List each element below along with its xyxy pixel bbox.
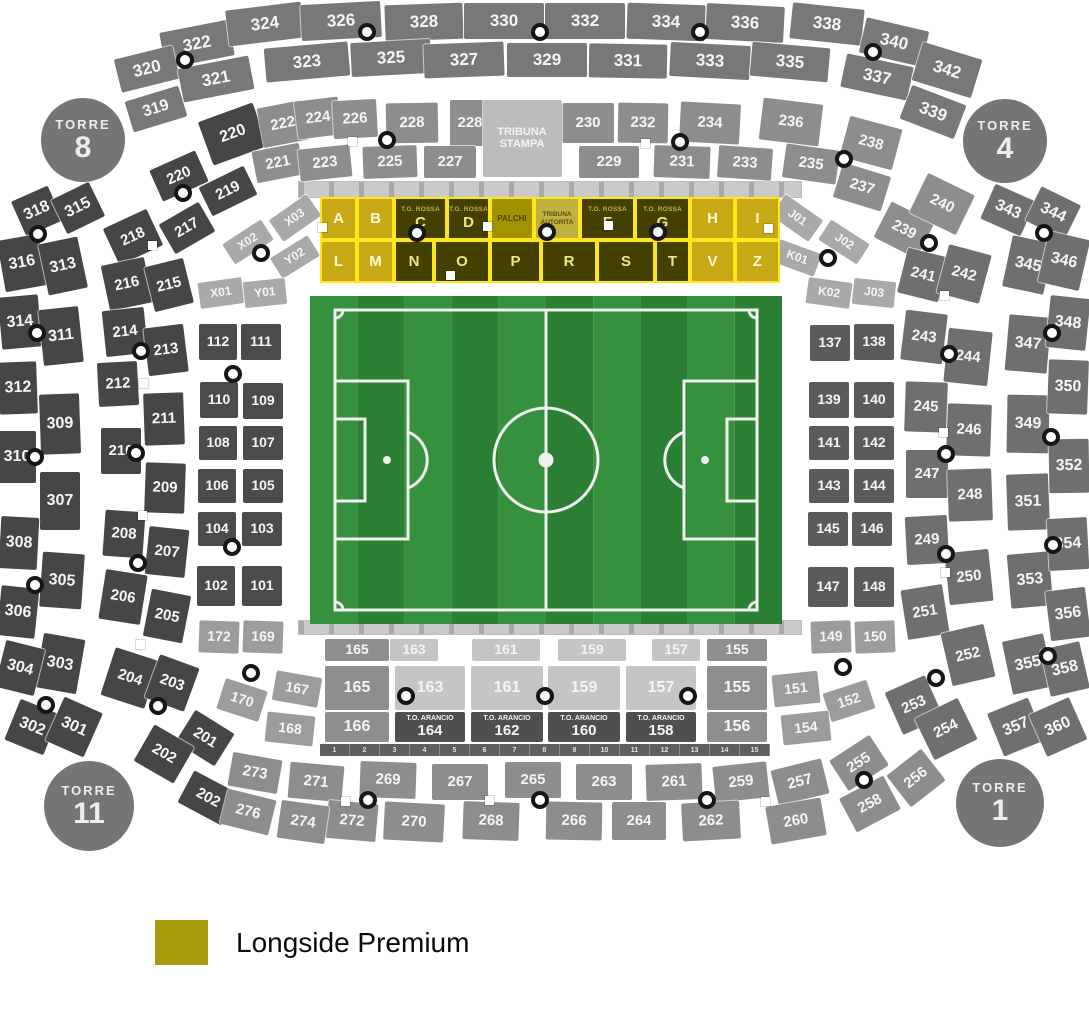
section-212-63[interactable]: 212 xyxy=(97,361,139,407)
premium-section-h[interactable]: H xyxy=(690,197,735,240)
section-305-34[interactable]: 305 xyxy=(39,551,85,609)
entrance-marker-icon xyxy=(1039,647,1057,665)
soccer-pitch xyxy=(310,296,782,624)
stadium-seating-map: TORRE8TORRE4TORRE11TORRE1322324326328330… xyxy=(0,0,1089,1032)
section-352-49[interactable]: 352 xyxy=(1049,439,1089,494)
section-152-178[interactable]: 152 xyxy=(822,680,875,723)
gate-square xyxy=(138,511,147,520)
section-155-185[interactable]: 155 xyxy=(707,639,767,661)
seat-row-number: 13 xyxy=(680,744,710,756)
section-263-123[interactable]: 263 xyxy=(576,764,632,800)
seat-row-number: 4 xyxy=(410,744,440,756)
tower-label: TORRE xyxy=(61,783,116,798)
section-label: 158 xyxy=(648,723,673,740)
section-248-108[interactable]: 248 xyxy=(947,468,993,522)
section-331-16[interactable]: 331 xyxy=(589,43,668,78)
section-219-78[interactable]: 219 xyxy=(199,166,258,217)
seat-row-number: 7 xyxy=(500,744,530,756)
entrance-marker-icon xyxy=(28,324,46,342)
section-260-120[interactable]: 260 xyxy=(765,797,827,844)
section-y01-164[interactable]: Y01 xyxy=(243,278,287,308)
section-label: 160 xyxy=(571,723,596,740)
section-261-121[interactable]: 261 xyxy=(645,763,702,801)
gate-square xyxy=(764,224,773,233)
section-266-126[interactable]: 266 xyxy=(546,802,603,841)
section-312-29[interactable]: 312 xyxy=(0,361,38,414)
entrance-marker-icon xyxy=(691,23,709,41)
seat-row-number: 6 xyxy=(470,744,500,756)
section-162-194[interactable]: T.O. ARANCIO162 xyxy=(471,712,543,742)
section-323-12[interactable]: 323 xyxy=(264,41,351,82)
section-257-117[interactable]: 257 xyxy=(770,758,829,806)
gate-square xyxy=(348,137,357,146)
section-112-136[interactable]: 112 xyxy=(199,324,237,360)
seat-row-number: 8 xyxy=(530,744,560,756)
section-270-130[interactable]: 270 xyxy=(383,801,445,842)
section-320-10[interactable]: 320 xyxy=(114,45,180,93)
tower-number: 8 xyxy=(75,132,92,164)
gate-square xyxy=(318,223,327,232)
section-360-56[interactable]: 360 xyxy=(1029,697,1088,757)
entrance-marker-icon xyxy=(29,225,47,243)
premium-section-o[interactable]: O xyxy=(434,240,490,283)
section-160-195[interactable]: T.O. ARANCIO160 xyxy=(548,712,620,742)
section-226-81[interactable]: 226 xyxy=(332,99,378,139)
premium-letter: D xyxy=(463,214,474,231)
section-213-62[interactable]: 213 xyxy=(143,324,189,377)
section-142-153[interactable]: 142 xyxy=(854,426,894,460)
tower-label: TORRE xyxy=(972,780,1027,795)
legend: Longside Premium xyxy=(155,920,469,965)
section-303-36[interactable]: 303 xyxy=(35,632,86,693)
entrance-marker-icon xyxy=(927,669,945,687)
premium-section-t[interactable]: T xyxy=(655,240,690,283)
section-206-69[interactable]: 206 xyxy=(98,569,147,625)
section-157-184[interactable]: 157 xyxy=(652,639,700,661)
section-103-145[interactable]: 103 xyxy=(242,512,282,546)
section-166-192[interactable]: 166 xyxy=(325,712,389,742)
premium-section-palchi[interactable]: PALCHI xyxy=(490,197,534,240)
section-216-59[interactable]: 216 xyxy=(101,257,154,311)
section-205-70[interactable]: 205 xyxy=(143,589,191,644)
premium-section-a[interactable]: A xyxy=(320,197,357,240)
section-211-64[interactable]: 211 xyxy=(143,392,185,445)
section-110-138[interactable]: 110 xyxy=(200,382,238,418)
section-k02-168[interactable]: K02 xyxy=(805,277,852,309)
section-170-172[interactable]: 170 xyxy=(216,678,268,722)
entrance-marker-icon xyxy=(358,23,376,41)
entrance-marker-icon xyxy=(531,791,549,809)
gate-square xyxy=(483,222,492,231)
entrance-marker-icon xyxy=(397,687,415,705)
section-324-1[interactable]: 324 xyxy=(225,2,305,47)
premium-sub-label: T.O. ROSSA xyxy=(401,206,440,213)
section-tribuna-stampa-100[interactable]: TRIBUNA STAMPA xyxy=(483,100,562,177)
section-268-128[interactable]: 268 xyxy=(462,801,519,841)
section-165-180[interactable]: 165 xyxy=(325,639,389,661)
entrance-marker-icon xyxy=(408,224,426,242)
gate-square xyxy=(148,241,157,250)
section-319-22[interactable]: 319 xyxy=(125,86,188,133)
section-139-150[interactable]: 139 xyxy=(809,382,849,418)
entrance-marker-icon xyxy=(224,365,242,383)
tower-label: TORRE xyxy=(977,118,1032,133)
section-347-44[interactable]: 347 xyxy=(1005,314,1052,373)
tower-4: TORRE4 xyxy=(963,99,1047,183)
section-217-58[interactable]: 217 xyxy=(159,202,216,254)
entrance-marker-icon xyxy=(37,696,55,714)
section-218-57[interactable]: 218 xyxy=(103,209,163,266)
section-156-197[interactable]: 156 xyxy=(707,712,767,742)
seat-row-number: 14 xyxy=(710,744,740,756)
section-161-188[interactable]: 161 xyxy=(471,666,543,710)
tower-number: 11 xyxy=(73,798,105,830)
entrance-marker-icon xyxy=(223,538,241,556)
premium-sub-label: T.O. ROSSA xyxy=(643,206,682,213)
section-155-191[interactable]: 155 xyxy=(707,666,767,710)
section-107-141[interactable]: 107 xyxy=(243,426,283,460)
section-140-151[interactable]: 140 xyxy=(854,382,894,418)
gate-square xyxy=(939,428,948,437)
section-167-173[interactable]: 167 xyxy=(272,670,323,708)
section-215-60[interactable]: 215 xyxy=(144,258,194,312)
section-154-179[interactable]: 154 xyxy=(781,711,832,746)
section-108-140[interactable]: 108 xyxy=(199,426,237,460)
section-252-112[interactable]: 252 xyxy=(940,624,995,687)
tower-number: 1 xyxy=(992,795,1009,827)
premium-sub-label: T.O. ROSSA xyxy=(588,206,627,213)
section-150-176[interactable]: 150 xyxy=(854,620,895,653)
section-343-40[interactable]: 343 xyxy=(980,184,1036,237)
seat-row-number: 5 xyxy=(440,744,470,756)
entrance-marker-icon xyxy=(864,43,882,61)
entrance-marker-icon xyxy=(940,345,958,363)
gate-square xyxy=(604,221,613,230)
entrance-marker-icon xyxy=(127,444,145,462)
seat-row-number: 12 xyxy=(650,744,680,756)
tower-number: 4 xyxy=(997,133,1014,165)
section-351-48[interactable]: 351 xyxy=(1006,473,1050,530)
premium-section-m[interactable]: M xyxy=(357,240,394,283)
section-271-131[interactable]: 271 xyxy=(288,762,345,803)
gate-square xyxy=(761,797,770,806)
section-333-17[interactable]: 333 xyxy=(669,42,751,80)
section-356-53[interactable]: 356 xyxy=(1045,587,1089,642)
section-251-111[interactable]: 251 xyxy=(900,584,949,640)
entrance-marker-icon xyxy=(819,249,837,267)
entrance-marker-icon xyxy=(132,342,150,360)
seat-row-number: 11 xyxy=(620,744,650,756)
entrance-marker-icon xyxy=(538,223,556,241)
gate-square xyxy=(485,796,494,805)
entrance-marker-icon xyxy=(1042,428,1060,446)
section-105-143[interactable]: 105 xyxy=(243,469,283,503)
section-273-133[interactable]: 273 xyxy=(227,752,282,794)
tower-1: TORRE1 xyxy=(956,759,1044,847)
section-236-87[interactable]: 236 xyxy=(759,98,824,147)
section-161-182[interactable]: 161 xyxy=(472,639,540,661)
premium-section-f[interactable]: T.O. ROSSAF xyxy=(580,197,635,240)
section-267-127[interactable]: 267 xyxy=(432,764,488,800)
section-111-137[interactable]: 111 xyxy=(241,324,281,360)
section-338-8[interactable]: 338 xyxy=(789,2,864,45)
gate-square xyxy=(341,797,350,806)
legend-color-swatch xyxy=(155,920,208,965)
seat-row-number: 3 xyxy=(380,744,410,756)
section-141-152[interactable]: 141 xyxy=(809,426,849,460)
tower-8: TORRE8 xyxy=(41,98,125,182)
section-207-68[interactable]: 207 xyxy=(145,526,190,578)
premium-section-s[interactable]: S xyxy=(597,240,655,283)
section-172-170[interactable]: 172 xyxy=(198,620,239,653)
section-151-177[interactable]: 151 xyxy=(771,671,820,708)
gate-square xyxy=(940,291,949,300)
entrance-marker-icon xyxy=(174,184,192,202)
section-101-147[interactable]: 101 xyxy=(242,566,282,606)
seat-row-number: 15 xyxy=(740,744,770,756)
entrance-marker-icon xyxy=(920,234,938,252)
entrance-marker-icon xyxy=(679,687,697,705)
premium-section-n[interactable]: N xyxy=(394,240,434,283)
section-label: 162 xyxy=(494,723,519,740)
gate-square xyxy=(941,568,950,577)
premium-section-p[interactable]: P xyxy=(490,240,541,283)
premium-section-d[interactable]: T.O. ROSSAD xyxy=(447,197,490,240)
section-225-91[interactable]: 225 xyxy=(362,145,417,179)
section-308-33[interactable]: 308 xyxy=(0,516,39,570)
entrance-marker-icon xyxy=(671,133,689,151)
entrance-marker-icon xyxy=(834,658,852,676)
section-237-97[interactable]: 237 xyxy=(833,162,891,211)
section-274-134[interactable]: 274 xyxy=(277,800,330,844)
gate-square xyxy=(139,379,148,388)
section-229-93[interactable]: 229 xyxy=(579,146,639,178)
entrance-marker-icon xyxy=(855,771,873,789)
section-325-13[interactable]: 325 xyxy=(350,39,432,77)
seat-row-number: 1 xyxy=(320,744,350,756)
section-233-95[interactable]: 233 xyxy=(717,145,773,181)
legend-label: Longside Premium xyxy=(236,927,469,959)
section-x03-160[interactable]: X03 xyxy=(269,194,322,242)
entrance-marker-icon xyxy=(149,697,167,715)
section-158-196[interactable]: T.O. ARANCIO158 xyxy=(626,712,696,742)
section-307-32[interactable]: 307 xyxy=(40,472,80,530)
section-148-159[interactable]: 148 xyxy=(854,567,894,607)
section-138-149[interactable]: 138 xyxy=(854,324,894,360)
section-137-148[interactable]: 137 xyxy=(810,325,850,361)
section-328-3[interactable]: 328 xyxy=(384,3,463,42)
seat-row-number: 9 xyxy=(560,744,590,756)
tower-11: TORRE11 xyxy=(44,761,134,851)
section-309-30[interactable]: 309 xyxy=(39,393,81,454)
section-245-105[interactable]: 245 xyxy=(904,381,948,432)
section-102-146[interactable]: 102 xyxy=(197,566,235,606)
entrance-marker-icon xyxy=(26,448,44,466)
entrance-marker-icon xyxy=(937,445,955,463)
section-163-181[interactable]: 163 xyxy=(390,639,438,661)
gate-square xyxy=(136,640,145,649)
premium-section-z[interactable]: Z xyxy=(735,240,780,283)
premium-section-v[interactable]: V xyxy=(690,240,735,283)
section-147-158[interactable]: 147 xyxy=(808,567,848,607)
entrance-marker-icon xyxy=(531,23,549,41)
entrance-marker-icon xyxy=(359,791,377,809)
entrance-marker-icon xyxy=(536,687,554,705)
section-159-189[interactable]: 159 xyxy=(548,666,620,710)
entrance-marker-icon xyxy=(378,131,396,149)
gate-square xyxy=(641,139,650,148)
entrance-marker-icon xyxy=(649,223,667,241)
section-x01-163[interactable]: X01 xyxy=(197,277,244,309)
section-y02-162[interactable]: Y02 xyxy=(270,235,320,279)
entrance-marker-icon xyxy=(26,576,44,594)
section-159-183[interactable]: 159 xyxy=(558,639,626,661)
section-348-45[interactable]: 348 xyxy=(1045,295,1089,351)
section-165-186[interactable]: 165 xyxy=(325,666,389,710)
section-144-155[interactable]: 144 xyxy=(854,469,894,503)
section-235-96[interactable]: 235 xyxy=(782,143,840,184)
section-227-92[interactable]: 227 xyxy=(424,146,476,178)
section-329-15[interactable]: 329 xyxy=(507,43,587,77)
section-313-26[interactable]: 313 xyxy=(38,236,88,295)
entrance-marker-icon xyxy=(1043,324,1061,342)
section-164-193[interactable]: T.O. ARANCIO164 xyxy=(395,712,465,742)
section-109-139[interactable]: 109 xyxy=(243,383,283,419)
section-j03-169[interactable]: J03 xyxy=(852,278,896,308)
premium-section-r[interactable]: R xyxy=(541,240,597,283)
section-335-18[interactable]: 335 xyxy=(750,42,831,83)
section-223-90[interactable]: 223 xyxy=(297,144,352,181)
tower-label: TORRE xyxy=(55,117,110,132)
section-168-174[interactable]: 168 xyxy=(265,712,316,747)
section-169-171[interactable]: 169 xyxy=(242,620,283,653)
section-label: 164 xyxy=(417,723,442,740)
entrance-marker-icon xyxy=(252,244,270,262)
section-209-66[interactable]: 209 xyxy=(144,462,186,513)
walkway-band-top xyxy=(298,181,802,198)
section-315-24[interactable]: 315 xyxy=(51,182,105,235)
section-350-47[interactable]: 350 xyxy=(1047,359,1089,414)
seat-row-number: 2 xyxy=(350,744,380,756)
seat-row-number: 10 xyxy=(590,744,620,756)
premium-sub-label: T.O. ROSSA xyxy=(449,206,488,213)
entrance-marker-icon xyxy=(1035,224,1053,242)
entrance-marker-icon xyxy=(242,664,260,682)
section-264-124[interactable]: 264 xyxy=(612,802,666,840)
section-327-14[interactable]: 327 xyxy=(423,42,504,79)
section-149-175[interactable]: 149 xyxy=(810,620,851,653)
section-276-135[interactable]: 276 xyxy=(219,788,276,835)
section-145-156[interactable]: 145 xyxy=(808,512,848,546)
section-106-142[interactable]: 106 xyxy=(198,469,236,503)
entrance-marker-icon xyxy=(937,545,955,563)
section-143-154[interactable]: 143 xyxy=(809,469,849,503)
premium-section-l[interactable]: L xyxy=(320,240,357,283)
entrance-marker-icon xyxy=(698,791,716,809)
entrance-marker-icon xyxy=(835,150,853,168)
section-332-5[interactable]: 332 xyxy=(545,3,625,39)
seat-row-number-strip: 123456789101112131415 xyxy=(320,744,770,756)
section-349-46[interactable]: 349 xyxy=(1006,395,1049,454)
section-146-157[interactable]: 146 xyxy=(852,512,892,546)
entrance-marker-icon xyxy=(129,554,147,572)
section-336-7[interactable]: 336 xyxy=(705,3,785,43)
premium-section-i[interactable]: I xyxy=(735,197,780,240)
section-232-85[interactable]: 232 xyxy=(618,103,669,144)
entrance-marker-icon xyxy=(176,51,194,69)
gate-square xyxy=(446,271,455,280)
premium-section-b[interactable]: B xyxy=(357,197,394,240)
section-230-84[interactable]: 230 xyxy=(562,103,614,143)
entrance-marker-icon xyxy=(1044,536,1062,554)
